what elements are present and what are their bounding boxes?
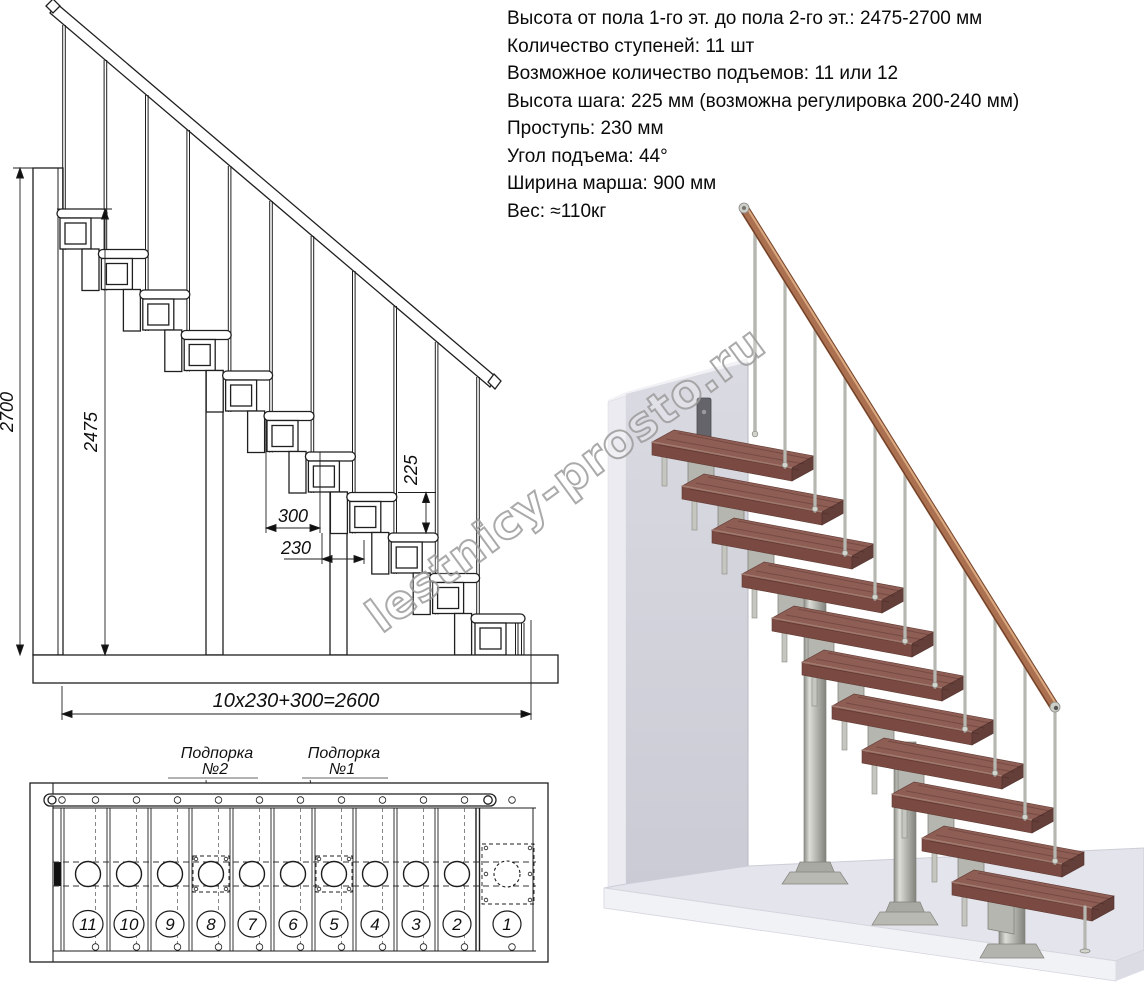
- tread-4: [862, 738, 1024, 789]
- step-number: 6: [288, 915, 298, 934]
- support1-label: Подпорка: [308, 745, 380, 762]
- step-number: 10: [120, 915, 139, 934]
- spec-line: Вес: ≈110кг: [507, 198, 1143, 226]
- tread-7: [772, 606, 934, 657]
- support2-label: Подпорка: [181, 745, 253, 762]
- column-2: [206, 371, 223, 656]
- step-number: 4: [370, 915, 379, 934]
- spec-line: Ширина марша: 900 мм: [507, 170, 1143, 198]
- side-view: 2700 2475 225 300 230 10x230+300=2600: [0, 0, 558, 720]
- spec-line: Проступь: 230 мм: [507, 115, 1143, 143]
- render-3d: [604, 203, 1144, 981]
- plan-view: Подпорка №2 Подпорка №1: [30, 745, 548, 962]
- dim-flight-height: 2475: [81, 411, 101, 453]
- step-number: 11: [79, 915, 97, 934]
- step-number: 9: [165, 915, 175, 934]
- support2-number: №2: [202, 761, 228, 778]
- dim-total-height: 2700: [0, 392, 17, 433]
- spec-line: Высота шага: 225 мм (возможна регулировк…: [507, 88, 1143, 116]
- dim-tread-depth: 300: [278, 506, 308, 526]
- dim-step-run: 230: [280, 538, 311, 558]
- tread-5: [832, 694, 994, 745]
- staircase-spec-sheet: 2700 2475 225 300 230 10x230+300=2600 По…: [0, 0, 1144, 983]
- step-number: 3: [411, 915, 421, 934]
- dim-step-rise: 225: [401, 454, 421, 486]
- plan-handrail: [44, 794, 496, 806]
- spec-line: Угол подъема: 44°: [507, 143, 1143, 171]
- dim-total-run: 10x230+300=2600: [213, 690, 380, 712]
- handrail-side: [46, 0, 501, 389]
- step-number: 7: [247, 915, 257, 934]
- specs-panel: Высота от пола 1-го эт. до пола 2-го эт.…: [507, 5, 1143, 225]
- support1-number: №1: [329, 761, 355, 778]
- step-number: 5: [329, 915, 339, 934]
- spec-line: Возможное количество подъемов: 11 или 12: [507, 60, 1143, 88]
- spec-line: Высота от пола 1-го эт. до пола 2-го эт.…: [507, 5, 1143, 33]
- wall-anchor-mark: [54, 862, 61, 886]
- step-number: 8: [206, 915, 216, 934]
- step-number: 1: [502, 915, 511, 934]
- spec-line: Количество ступеней: 11 шт: [507, 33, 1143, 61]
- step-1-side: [471, 614, 525, 655]
- floor-side: [33, 655, 558, 683]
- step-number: 2: [451, 915, 462, 934]
